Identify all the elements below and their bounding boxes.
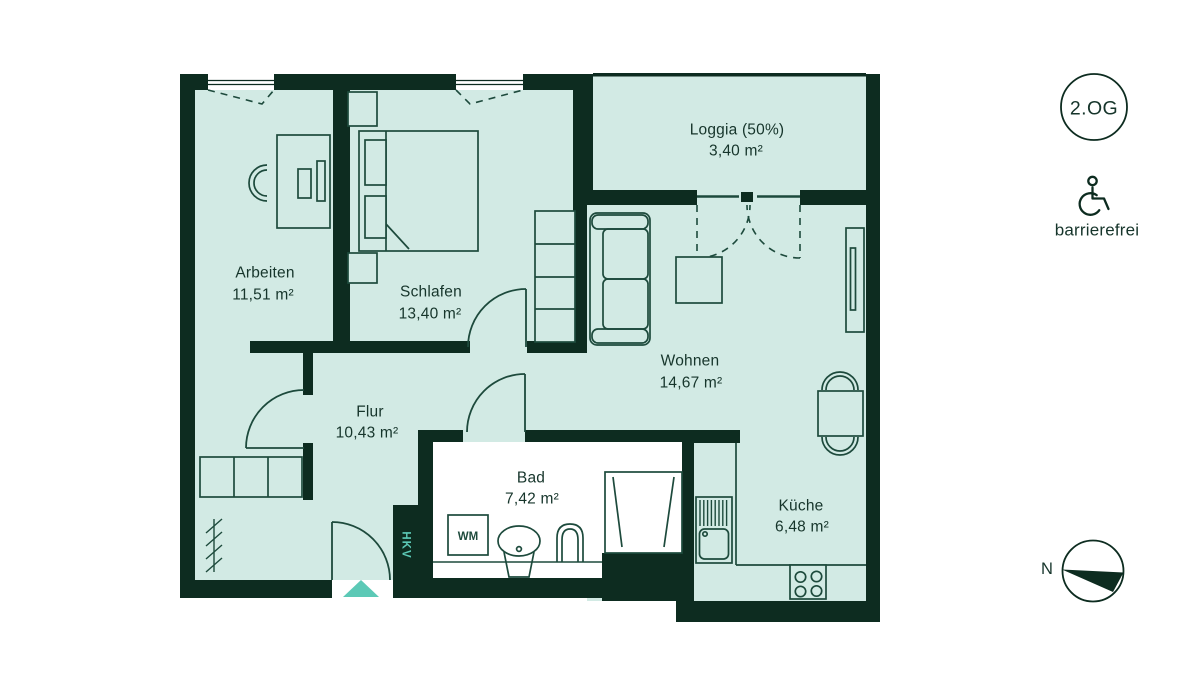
room-area-flur: 10,43 m² bbox=[336, 425, 399, 442]
entrance-arrow bbox=[343, 580, 379, 597]
room-area-bad: 7,42 m² bbox=[505, 491, 559, 508]
stove bbox=[790, 565, 826, 599]
accessibility-label: barrierefrei bbox=[1055, 221, 1140, 240]
kitchen-sink-unit bbox=[696, 497, 732, 563]
floor-badge-label: 2.OG bbox=[1070, 98, 1118, 120]
room-label-schlafen: Schlafen bbox=[400, 284, 462, 301]
compass: N bbox=[1041, 541, 1123, 602]
room-area-arbeiten: 11,51 m² bbox=[232, 287, 294, 304]
room-label-flur: Flur bbox=[356, 404, 384, 421]
nightstand bbox=[348, 92, 377, 126]
room-area-schlafen: 13,40 m² bbox=[399, 306, 462, 323]
tv-board bbox=[846, 228, 864, 332]
wardrobe bbox=[200, 457, 302, 497]
wm-label: WM bbox=[458, 531, 478, 543]
shelf bbox=[535, 211, 575, 342]
floorplan-drawing: WM Arbeiten 11,51 m² Schlafen 13,40 m² L… bbox=[0, 0, 1200, 700]
sofa bbox=[590, 213, 650, 345]
room-area-kueche: 6,48 m² bbox=[775, 519, 829, 536]
nightstand bbox=[348, 253, 377, 283]
loggia-open-edge bbox=[593, 73, 866, 77]
room-label-bad: Bad bbox=[517, 470, 545, 487]
room-label-kueche: Küche bbox=[779, 498, 824, 515]
compass-n-label: N bbox=[1041, 560, 1053, 578]
coffee-table bbox=[676, 257, 722, 303]
floor-badge: 2.OG bbox=[1061, 74, 1127, 140]
wheelchair-icon bbox=[1080, 177, 1109, 215]
hkv-label: HKV bbox=[400, 531, 412, 558]
bed bbox=[359, 131, 478, 251]
floorplan-page: WM Arbeiten 11,51 m² Schlafen 13,40 m² L… bbox=[0, 0, 1200, 700]
room-label-wohnen: Wohnen bbox=[661, 353, 720, 370]
room-area-wohnen: 14,67 m² bbox=[660, 375, 723, 392]
compass-needle bbox=[1062, 570, 1124, 593]
room-label-loggia: Loggia (50%) bbox=[690, 122, 785, 139]
room-label-arbeiten: Arbeiten bbox=[235, 265, 294, 282]
room-area-loggia: 3,40 m² bbox=[709, 143, 763, 160]
washing-machine: WM bbox=[448, 515, 488, 555]
pillow bbox=[365, 196, 386, 238]
pillow bbox=[365, 140, 386, 185]
bad-door-opening bbox=[463, 430, 525, 442]
